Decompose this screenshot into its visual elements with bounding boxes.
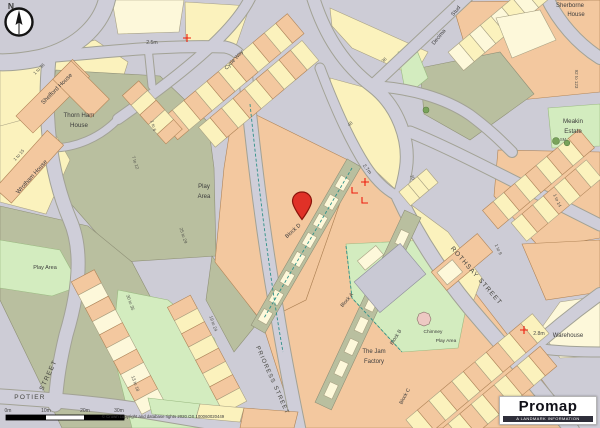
label-chimney: Chimney	[424, 329, 444, 335]
promap-brand: Promap	[503, 399, 593, 415]
label-meakin-line1: Meakin	[563, 118, 584, 125]
label-sherborne-line1: Sherborne	[556, 3, 585, 9]
label-play-area-1-line1: Play	[198, 184, 210, 190]
label-1to9: 1 to 9	[494, 243, 503, 256]
promap-tagline: A LANDMARK INFORMATION	[503, 416, 593, 422]
label-bm-28: 2.8m	[533, 331, 545, 337]
label-potier-line1: POTIER	[14, 394, 45, 401]
scale-tick-0: 0m	[5, 408, 12, 414]
copyright-notice: © Crown copyright and database rights 20…	[102, 414, 225, 419]
label-sherborne-line2: House	[567, 12, 585, 18]
label-meakin-line2: Estate	[564, 128, 582, 135]
label-play-area-1-line2: Area	[198, 194, 211, 200]
label-thorn-ham-house-line1: Thorn Ham	[64, 112, 95, 119]
scale-tick-2: 20m	[80, 408, 90, 414]
label-sm: SM	[560, 137, 567, 142]
promap-logo: Promap A LANDMARK INFORMATION	[499, 396, 597, 425]
label-jam-factory-line1: The Jam	[362, 349, 385, 355]
label-play-area-3: Play Area	[436, 338, 457, 344]
scale-tick-1: 10m	[41, 408, 51, 414]
compass-north-label: N	[8, 1, 14, 11]
label-jam-factory-line2: Factory	[364, 359, 384, 365]
label-play-area-2: Play Area	[33, 265, 57, 271]
label-thorn-ham-house-line2: House	[70, 122, 88, 129]
label-bm-25: 2.5m	[146, 40, 158, 46]
map-svg: Shelford House 1 to 36 Thorn Ham House W…	[0, 0, 600, 428]
label-warehouse: Warehouse	[553, 333, 584, 339]
map-canvas[interactable]: Shelford House 1 to 36 Thorn Ham House W…	[0, 0, 600, 428]
label-92to123: 92 to 123	[574, 70, 579, 89]
compass-rose: N	[6, 1, 33, 36]
